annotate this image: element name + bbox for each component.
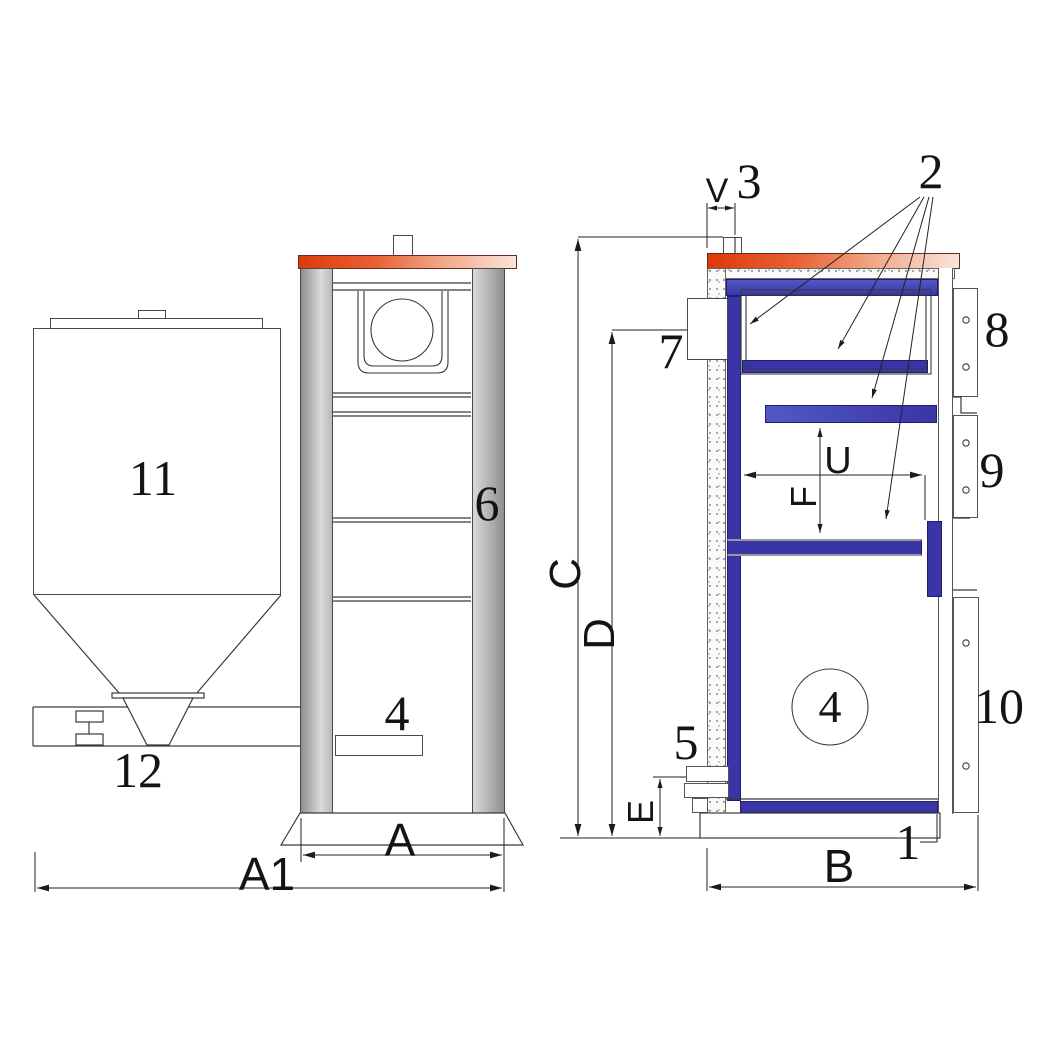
dim-label-E: E bbox=[623, 800, 659, 824]
leader-part-2b bbox=[838, 197, 924, 349]
panel-9-hole-1 bbox=[963, 440, 969, 446]
part-label-6: 6 bbox=[475, 478, 500, 528]
dim-label-V: V bbox=[706, 174, 729, 208]
part-label-5: 5 bbox=[674, 717, 699, 767]
panel-8-hole-1 bbox=[963, 317, 969, 323]
dim-label-F: F bbox=[786, 486, 822, 508]
burner-circle bbox=[371, 299, 433, 361]
part-label-7: 7 bbox=[659, 326, 684, 376]
leader-part-2a bbox=[750, 197, 920, 324]
auger-coupling-lower bbox=[76, 734, 103, 745]
dim-CDE-extensions bbox=[560, 237, 723, 838]
panel-9-hole-2 bbox=[963, 487, 969, 493]
leader-part-2c bbox=[872, 197, 929, 398]
part-label-8: 8 bbox=[985, 304, 1010, 354]
dim-label-C: C bbox=[544, 558, 588, 590]
hopper-outlet-flange bbox=[112, 693, 204, 698]
hx-chamber-inner bbox=[746, 295, 926, 369]
part-label-2: 2 bbox=[919, 146, 944, 196]
part-label-11: 11 bbox=[129, 453, 177, 503]
dim-label-U: U bbox=[824, 442, 851, 480]
dim-label-B: B bbox=[824, 843, 855, 889]
linework-layer bbox=[0, 0, 1051, 1051]
part-label-9: 9 bbox=[980, 445, 1005, 495]
boiler-technical-drawing: 11 12 6 4 2 3 7 8 9 10 5 1 4 A A1 B C D … bbox=[0, 0, 1051, 1051]
front-panel-lines bbox=[333, 283, 471, 601]
panel-10-hole-1 bbox=[963, 640, 969, 646]
panel-10-hole-2 bbox=[963, 763, 969, 769]
hopper-cone-lines bbox=[34, 595, 281, 694]
part-label-12: 12 bbox=[113, 745, 163, 795]
part-label-4-front: 4 bbox=[385, 688, 410, 738]
panel-8-hole-2 bbox=[963, 364, 969, 370]
hopper-outlet-funnel bbox=[123, 698, 193, 745]
part-label-4-side: 4 bbox=[819, 684, 842, 730]
part-label-1: 1 bbox=[896, 817, 921, 867]
dim-label-A1: A1 bbox=[239, 851, 295, 897]
part-label-10: 10 bbox=[974, 681, 1024, 731]
hx-chamber-outer bbox=[741, 290, 931, 374]
dim-label-D: D bbox=[578, 618, 622, 650]
auger-coupling-upper bbox=[76, 711, 103, 722]
part-label-3: 3 bbox=[737, 156, 762, 206]
burner-recess-inner bbox=[364, 291, 442, 366]
dim-label-A: A bbox=[385, 817, 416, 863]
